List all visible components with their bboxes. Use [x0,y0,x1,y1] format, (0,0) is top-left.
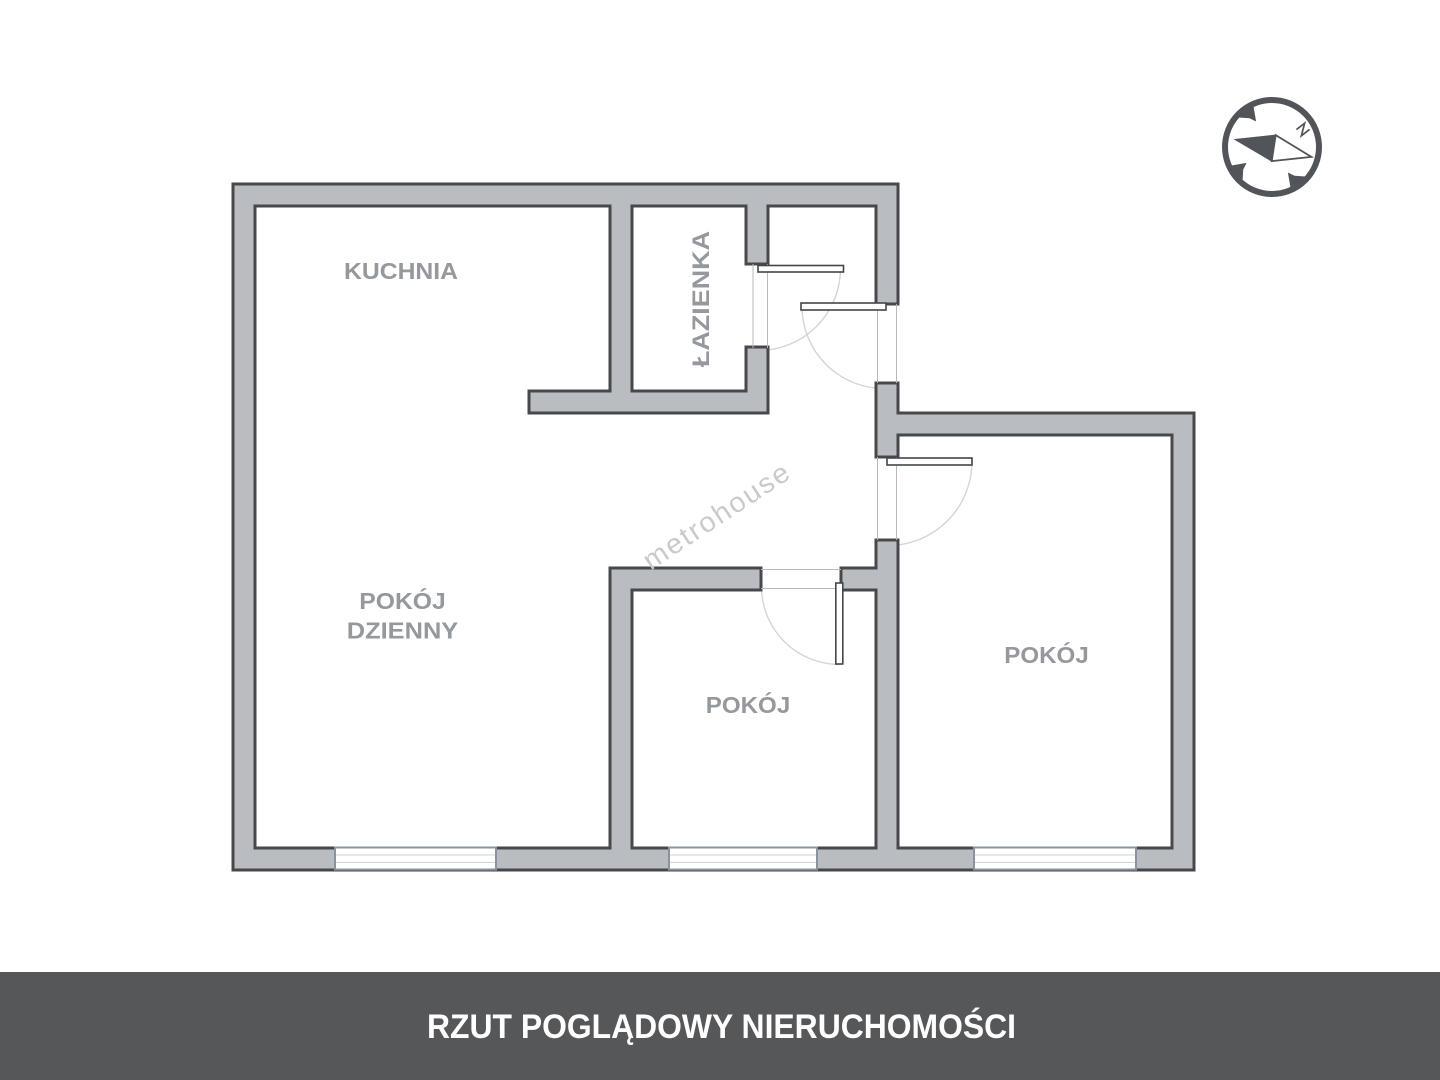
svg-text:RZUT POGLĄDOWY NIERUCHOMOŚCI: RZUT POGLĄDOWY NIERUCHOMOŚCI [427,1006,1016,1046]
svg-text:POKÓJ: POKÓJ [1004,641,1089,668]
svg-text:ŁAZIENKA: ŁAZIENKA [688,231,715,367]
svg-text:POKÓJ: POKÓJ [706,691,791,718]
svg-text:POKÓJ: POKÓJ [359,587,446,614]
svg-text:DZIENNY: DZIENNY [347,618,459,644]
svg-text:KUCHNIA: KUCHNIA [344,258,458,284]
